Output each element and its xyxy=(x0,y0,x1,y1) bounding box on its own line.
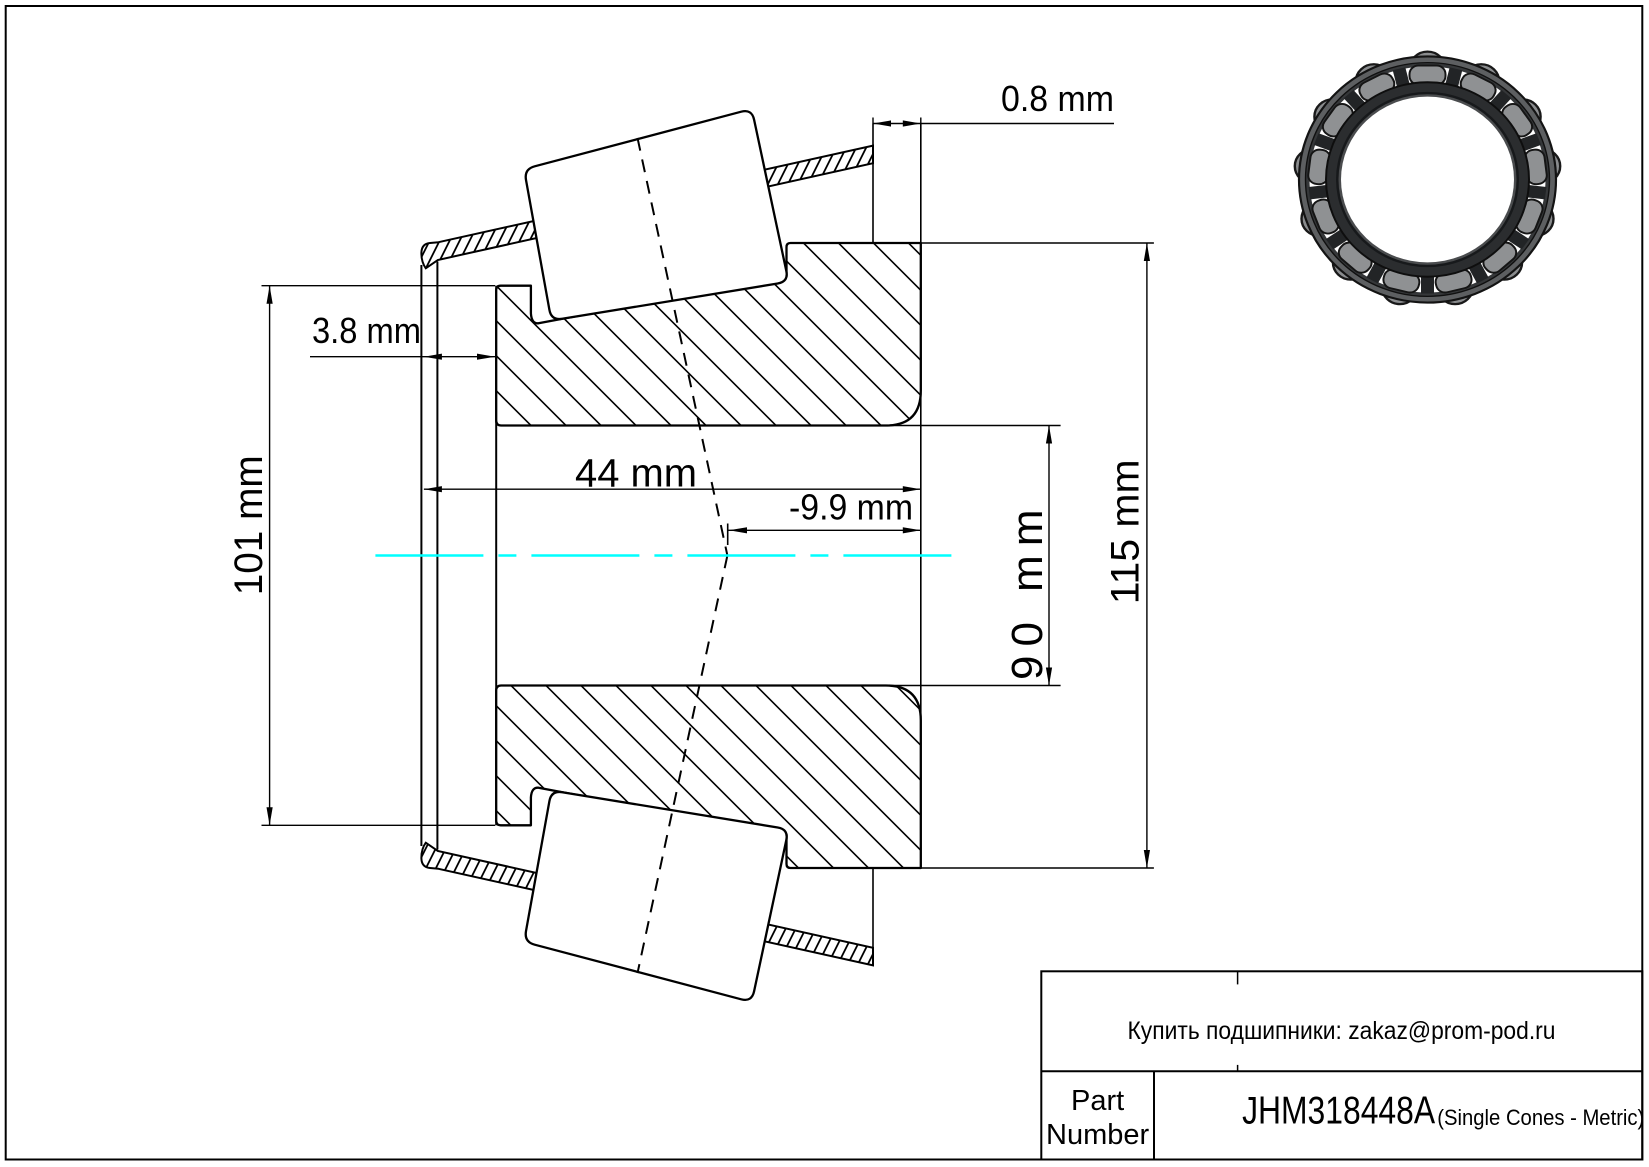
svg-text:Number: Number xyxy=(1046,1119,1149,1151)
svg-text:(Single Cones - Metric): (Single Cones - Metric) xyxy=(1437,1105,1644,1130)
svg-text:115 mm: 115 mm xyxy=(1104,459,1148,604)
svg-text:-9.9 mm: -9.9 mm xyxy=(789,487,913,528)
svg-text:JHM318448A: JHM318448A xyxy=(1242,1089,1435,1132)
svg-text:3.8 mm: 3.8 mm xyxy=(312,310,421,351)
svg-text:Part: Part xyxy=(1071,1085,1124,1117)
svg-text:0.8 mm: 0.8 mm xyxy=(1001,78,1114,119)
svg-text:101 mm: 101 mm xyxy=(227,455,271,595)
svg-text:90 mm: 90 mm xyxy=(1003,501,1052,680)
svg-text:44 mm: 44 mm xyxy=(575,451,697,495)
svg-text:Купить подшипники: zakaz@prom-: Купить подшипники: zakaz@prom-pod.ru xyxy=(1128,1017,1556,1045)
